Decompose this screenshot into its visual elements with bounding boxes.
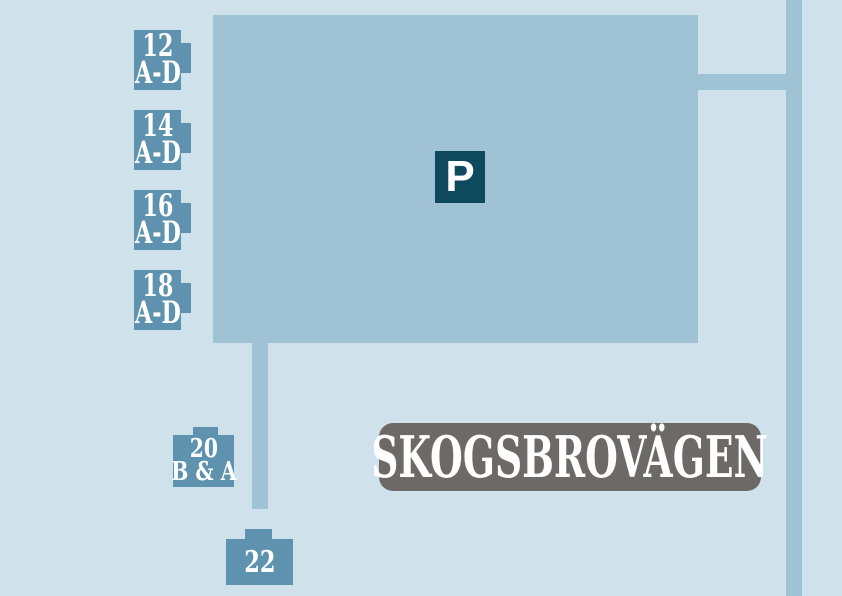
building-marker-12-ad: 12 A-D [134, 30, 181, 90]
right-side-road [786, 0, 802, 596]
building-label-line2: A-D [135, 60, 181, 87]
building-marker-14-ad: 14 A-D [134, 110, 181, 170]
parking-sign: P [435, 151, 485, 203]
building-label: 20 B & A [171, 438, 236, 484]
building-label: 16 A-D [135, 193, 181, 247]
building-label-line2: A-D [135, 140, 181, 167]
building-marker-20-ba: 20 B & A [173, 435, 234, 487]
parking-sign-label: P [445, 152, 474, 202]
site-map: P 12 A-D 14 A-D 16 A-D 18 A-D 20 B & A [0, 0, 842, 596]
street-name-label: SKOGSBROVÄGEN [372, 424, 769, 491]
building-marker-18-ad: 18 A-D [134, 270, 181, 330]
building-label: 22 [244, 545, 275, 580]
street-name-badge: SKOGSBROVÄGEN [379, 423, 761, 491]
building-label-line2: A-D [135, 300, 181, 327]
connector-road [698, 74, 786, 90]
building-label-line1: 22 [244, 545, 275, 580]
building-marker-16-ad: 16 A-D [134, 190, 181, 250]
driveway-road [252, 343, 268, 509]
building-label: 12 A-D [135, 33, 181, 87]
building-label: 18 A-D [135, 273, 181, 327]
building-label-line2: B & A [171, 461, 236, 484]
building-label: 14 A-D [135, 113, 181, 167]
building-marker-22: 22 [226, 539, 293, 585]
building-label-line2: A-D [135, 220, 181, 247]
